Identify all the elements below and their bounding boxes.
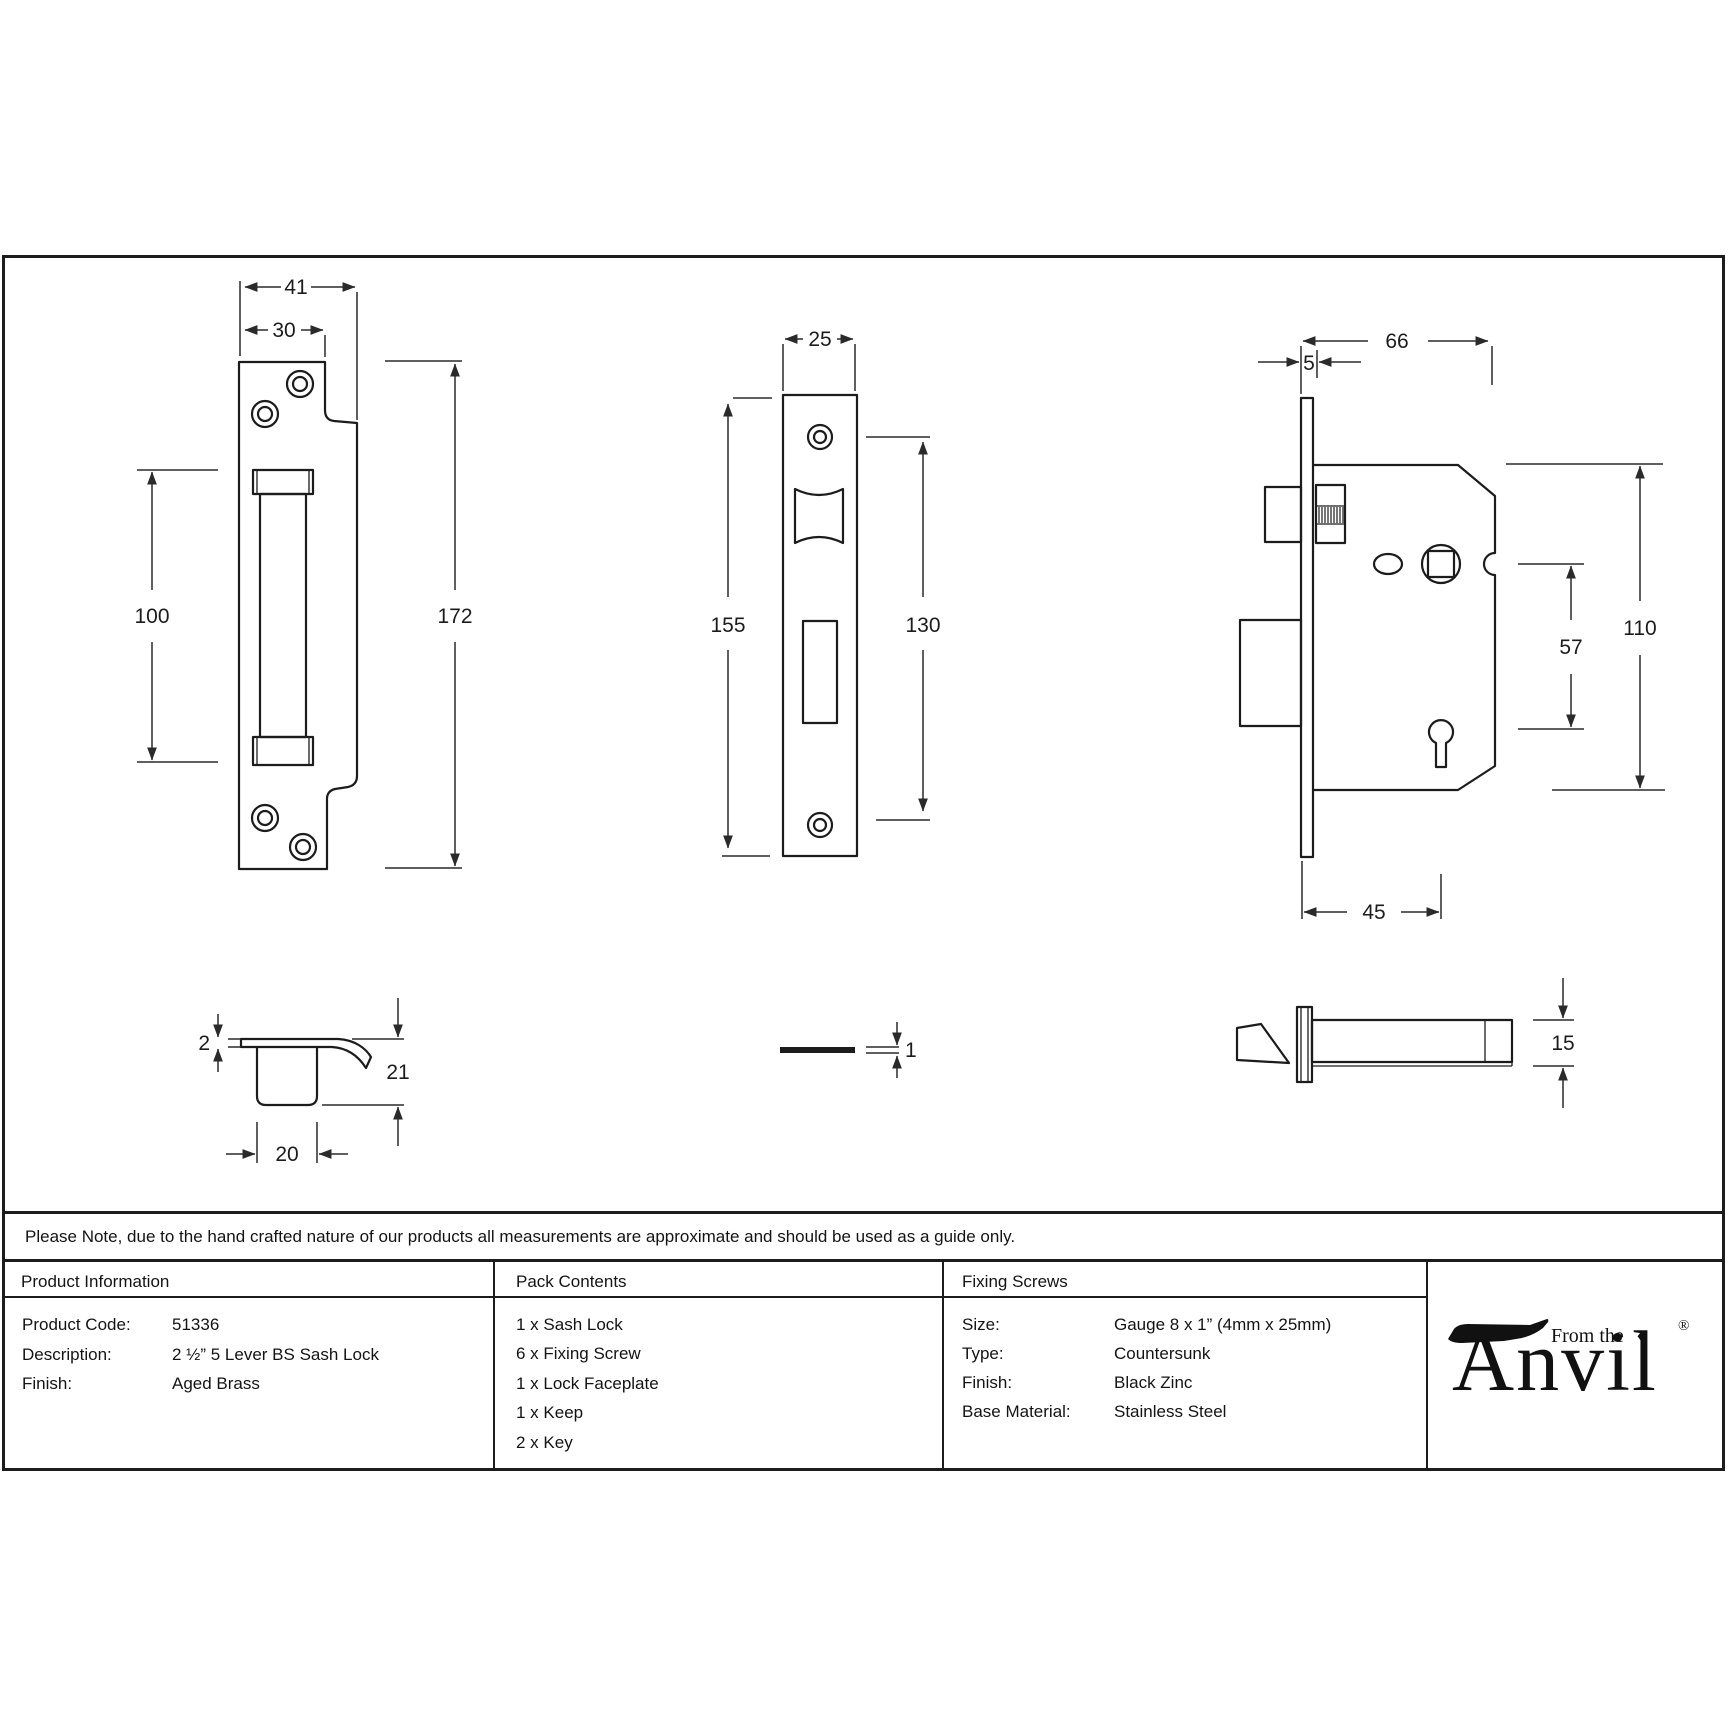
header-row-bottom-border xyxy=(2,1296,1427,1298)
screw-finish-label: Finish: xyxy=(962,1373,1012,1392)
diamond-icon: ♦ xyxy=(1637,1328,1645,1346)
screw-size-value: Gauge 8 x 1” (4mm x 25mm) xyxy=(1114,1315,1331,1335)
description-value: 2 ½” 5 Lever BS Sash Lock xyxy=(172,1345,379,1365)
product-info-header: Product Information xyxy=(21,1271,169,1293)
column-divider-3 xyxy=(1426,1259,1428,1471)
screw-material-label: Base Material: xyxy=(962,1402,1071,1421)
note-row-bottom-border xyxy=(2,1259,1725,1262)
finish-row: Finish: Aged Brass xyxy=(22,1374,72,1394)
brand-tagline: From the xyxy=(1551,1325,1624,1348)
screw-finish-value: Black Zinc xyxy=(1114,1373,1192,1393)
sheet-outer-border xyxy=(2,255,1725,1471)
pack-item-2: 6 x Fixing Screw xyxy=(516,1343,641,1365)
screw-material-row: Base Material: Stainless Steel xyxy=(962,1402,1071,1422)
column-divider-1 xyxy=(493,1259,495,1471)
screw-material-value: Stainless Steel xyxy=(1114,1402,1226,1422)
anvil-icon xyxy=(1446,1316,1552,1346)
registered-trademark-icon: ® xyxy=(1678,1318,1689,1335)
finish-value: Aged Brass xyxy=(172,1374,260,1394)
spec-sheet: 41 30 100 172 25 155 130 xyxy=(0,0,1730,1730)
screw-type-label: Type: xyxy=(962,1344,1004,1363)
pack-item-3: 1 x Lock Faceplate xyxy=(516,1373,659,1395)
product-code-label: Product Code: xyxy=(22,1315,131,1334)
pack-item-1: 1 x Sash Lock xyxy=(516,1314,623,1336)
description-row: Description: 2 ½” 5 Lever BS Sash Lock xyxy=(22,1345,112,1365)
description-label: Description: xyxy=(22,1345,112,1364)
finish-label: Finish: xyxy=(22,1374,72,1393)
pack-contents-header: Pack Contents xyxy=(516,1271,627,1293)
note-row-top-border xyxy=(2,1211,1725,1214)
screw-size-label: Size: xyxy=(962,1315,1000,1334)
product-code-value: 51336 xyxy=(172,1315,219,1335)
screw-finish-row: Finish: Black Zinc xyxy=(962,1373,1012,1393)
pack-item-5: 2 x Key xyxy=(516,1432,573,1454)
pack-item-4: 1 x Keep xyxy=(516,1402,583,1424)
fixing-screws-header: Fixing Screws xyxy=(962,1271,1068,1293)
measurement-note: Please Note, due to the hand crafted nat… xyxy=(25,1226,1015,1248)
column-divider-2 xyxy=(942,1259,944,1471)
screw-type-value: Countersunk xyxy=(1114,1344,1210,1364)
screw-size-row: Size: Gauge 8 x 1” (4mm x 25mm) xyxy=(962,1315,1000,1335)
product-code-row: Product Code: 51336 xyxy=(22,1315,131,1335)
screw-type-row: Type: Countersunk xyxy=(962,1344,1004,1364)
